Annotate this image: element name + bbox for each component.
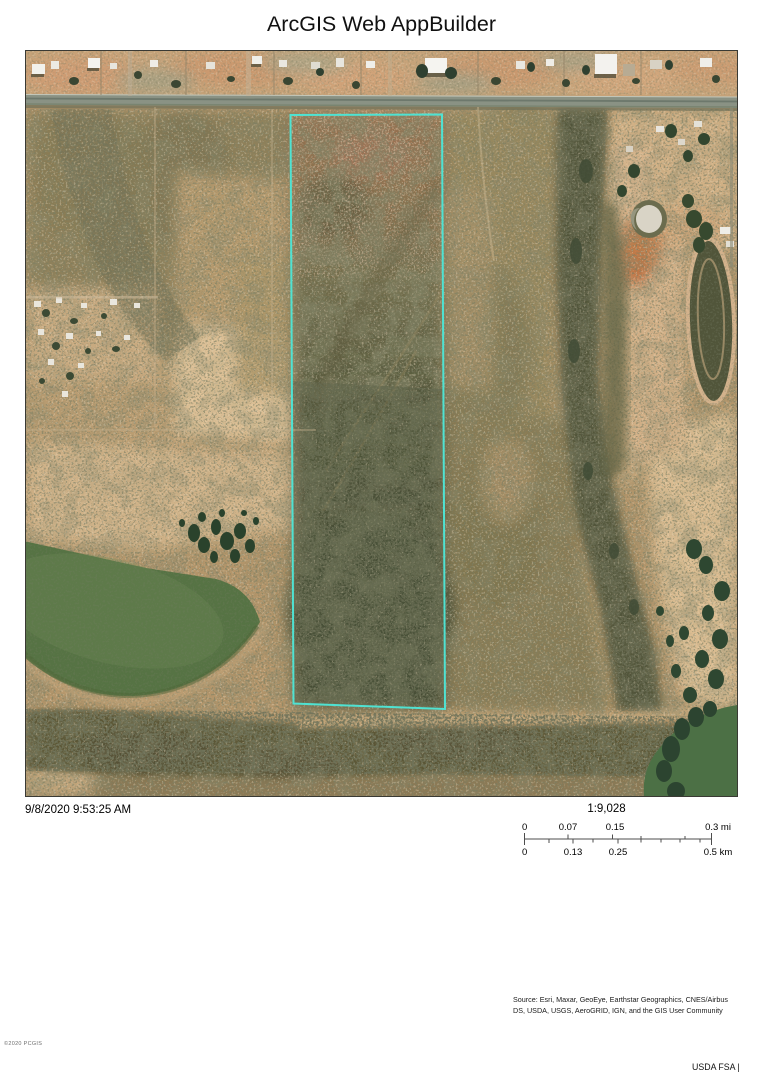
svg-text:0.07: 0.07 bbox=[559, 822, 578, 833]
svg-text:0: 0 bbox=[522, 847, 527, 858]
svg-text:0.13: 0.13 bbox=[564, 847, 583, 858]
svg-text:0.5 km: 0.5 km bbox=[704, 847, 733, 858]
svg-text:0: 0 bbox=[522, 822, 527, 833]
svg-text:0.3 mi: 0.3 mi bbox=[705, 822, 731, 833]
svg-text:0.15: 0.15 bbox=[606, 822, 625, 833]
svg-text:0.25: 0.25 bbox=[609, 847, 628, 858]
